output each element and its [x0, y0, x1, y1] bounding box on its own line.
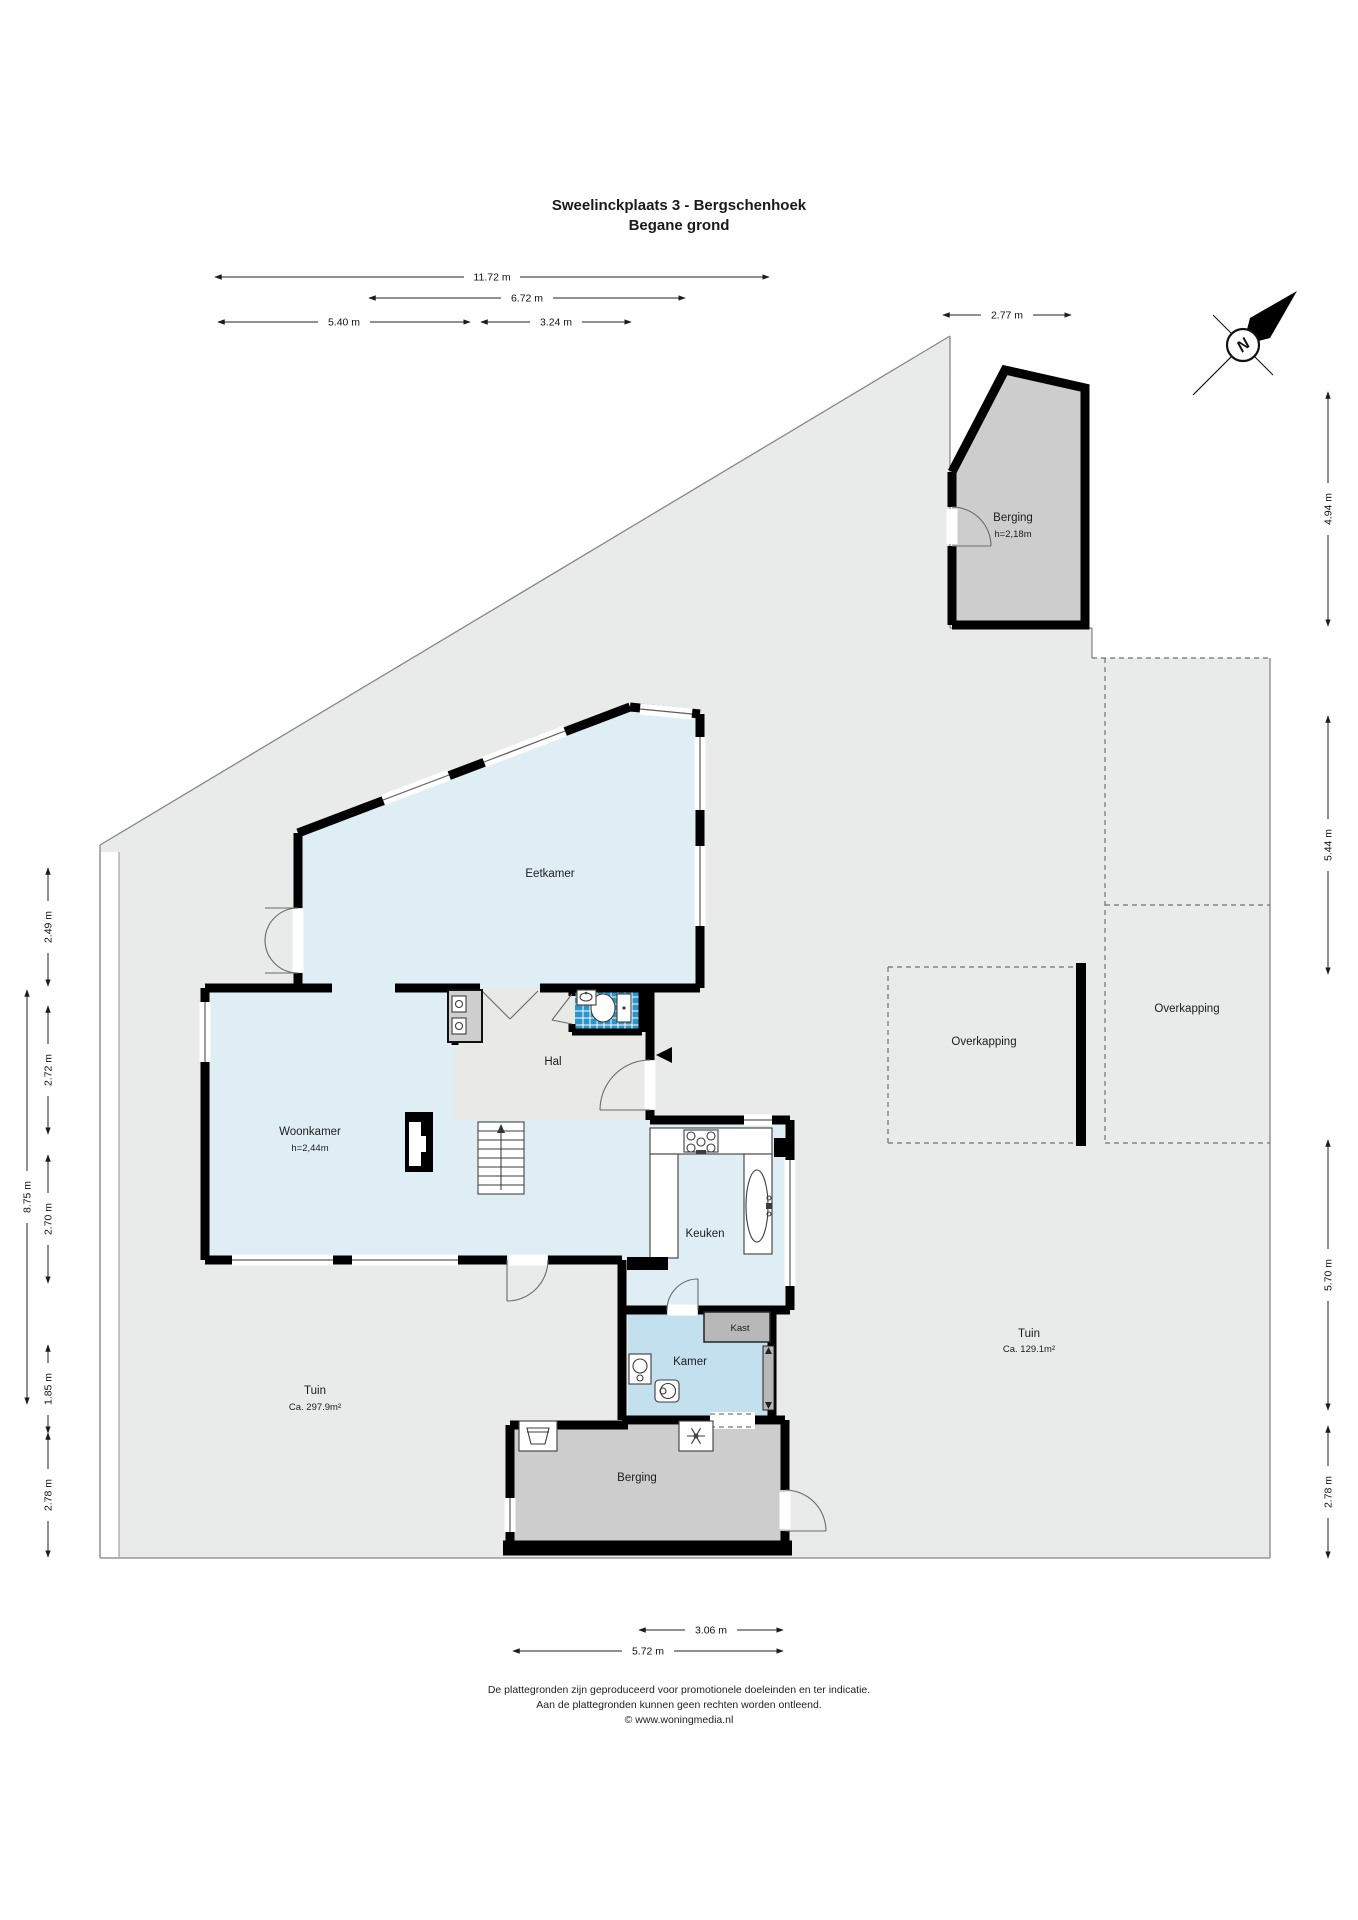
- room-label-kast: Kast: [730, 1323, 749, 1334]
- left-path-strip: [101, 852, 119, 1557]
- title-line1: Sweelinckplaats 3 - Bergschenhoek: [552, 197, 807, 214]
- dim-top-2: 6.72 m: [369, 291, 685, 305]
- kamer-toilet: [655, 1380, 679, 1402]
- svg-text:2.72 m: 2.72 m: [43, 1054, 55, 1086]
- svg-text:11.72 m: 11.72 m: [473, 272, 510, 284]
- compass-rose: N: [1193, 291, 1297, 395]
- svg-text:Ca. 129.1m²: Ca. 129.1m²: [1003, 1344, 1055, 1355]
- window: [640, 709, 692, 714]
- room-label-hal: Hal: [544, 1056, 561, 1068]
- svg-text:Tuin: Tuin: [1018, 1328, 1040, 1340]
- svg-text:Woonkamer: Woonkamer: [279, 1126, 341, 1138]
- svg-text:1.85 m: 1.85 m: [43, 1373, 55, 1405]
- dim-left-5: 2.78 m: [41, 1433, 55, 1557]
- kamer-sink-cabinet: [629, 1354, 651, 1384]
- room-label-overkapping-left: Overkapping: [951, 1036, 1016, 1048]
- washing-machine: [519, 1421, 557, 1451]
- dim-left-2: 2.72 m: [41, 1006, 55, 1134]
- page-title: Sweelinckplaats 3 - Bergschenhoek Begane…: [552, 197, 807, 234]
- room-label-keuken: Keuken: [685, 1228, 724, 1240]
- dashed-passage: [710, 1412, 755, 1429]
- dim-top-4: 3.24 m: [481, 315, 631, 329]
- svg-text:Ca. 297.9m²: Ca. 297.9m²: [289, 1402, 341, 1413]
- svg-text:3.24 m: 3.24 m: [540, 317, 572, 329]
- ventilation-unit: [679, 1421, 713, 1451]
- staircase: [478, 1122, 524, 1194]
- stove: [684, 1130, 718, 1154]
- svg-text:2.49 m: 2.49 m: [43, 911, 55, 943]
- svg-text:3.06 m: 3.06 m: [695, 1625, 727, 1637]
- toilet-fixture: [591, 994, 631, 1022]
- floorplan-page: Sweelinckplaats 3 - Bergschenhoek Begane…: [0, 0, 1358, 1920]
- dim-left-6: 8.75 m: [20, 990, 34, 1404]
- berging-top-floor: [952, 370, 1085, 625]
- dim-top-5: 2.77 m: [943, 308, 1071, 322]
- dim-top-3: 5.40 m: [218, 315, 470, 329]
- dim-left-1: 2.49 m: [41, 868, 55, 986]
- svg-text:2.77 m: 2.77 m: [991, 310, 1023, 322]
- dim-bottom-1: 3.06 m: [639, 1623, 783, 1637]
- dim-left-3: 2.70 m: [41, 1155, 55, 1283]
- dim-right-2: 5.44 m: [1321, 716, 1335, 974]
- room-label-berging-bottom: Berging: [617, 1472, 657, 1484]
- dim-right-1: 4.94 m: [1321, 392, 1335, 626]
- svg-text:5.40 m: 5.40 m: [328, 317, 360, 329]
- sliding-door: [763, 1346, 774, 1410]
- footer-line2: Aan de plattegronden kunnen geen rechten…: [536, 1699, 821, 1711]
- room-label-overkapping-right: Overkapping: [1154, 1003, 1219, 1015]
- svg-text:6.72 m: 6.72 m: [511, 293, 543, 305]
- fireplace: [405, 1112, 433, 1172]
- footer-line1: De plattegronden zijn geproduceerd voor …: [488, 1684, 870, 1696]
- svg-text:5.44 m: 5.44 m: [1323, 829, 1335, 861]
- svg-text:2.78 m: 2.78 m: [1323, 1476, 1335, 1508]
- room-label-kamer: Kamer: [673, 1356, 707, 1368]
- svg-text:4.94 m: 4.94 m: [1323, 493, 1335, 525]
- svg-text:Berging: Berging: [993, 512, 1033, 524]
- dim-right-4: 2.78 m: [1321, 1426, 1335, 1558]
- svg-text:h=2,44m: h=2,44m: [291, 1143, 328, 1154]
- svg-text:8.75 m: 8.75 m: [22, 1181, 34, 1213]
- svg-text:5.72 m: 5.72 m: [632, 1646, 664, 1658]
- svg-text:2.78 m: 2.78 m: [43, 1479, 55, 1511]
- kitchen-column: [774, 1138, 791, 1157]
- footer-line3: © www.woningmedia.nl: [625, 1714, 734, 1726]
- svg-text:5.70 m: 5.70 m: [1323, 1259, 1335, 1291]
- svg-text:h=2,18m: h=2,18m: [994, 529, 1031, 540]
- svg-text:Tuin: Tuin: [304, 1385, 326, 1397]
- dim-top-1: 11.72 m: [215, 270, 769, 284]
- floorplan-canvas: Sweelinckplaats 3 - Bergschenhoek Begane…: [0, 0, 1358, 1920]
- dim-right-3: 5.70 m: [1321, 1140, 1335, 1410]
- title-line2: Begane grond: [629, 217, 730, 234]
- berging-top-building: [952, 370, 1085, 625]
- footer-disclaimer: De plattegronden zijn geproduceerd voor …: [488, 1684, 870, 1726]
- svg-text:2.70 m: 2.70 m: [43, 1203, 55, 1235]
- dim-bottom-2: 5.72 m: [513, 1644, 783, 1658]
- room-label-eetkamer: Eetkamer: [525, 868, 574, 880]
- toilet-sink: [577, 990, 596, 1005]
- meter-closet: [448, 990, 482, 1042]
- dim-left-4: 1.85 m: [41, 1345, 55, 1433]
